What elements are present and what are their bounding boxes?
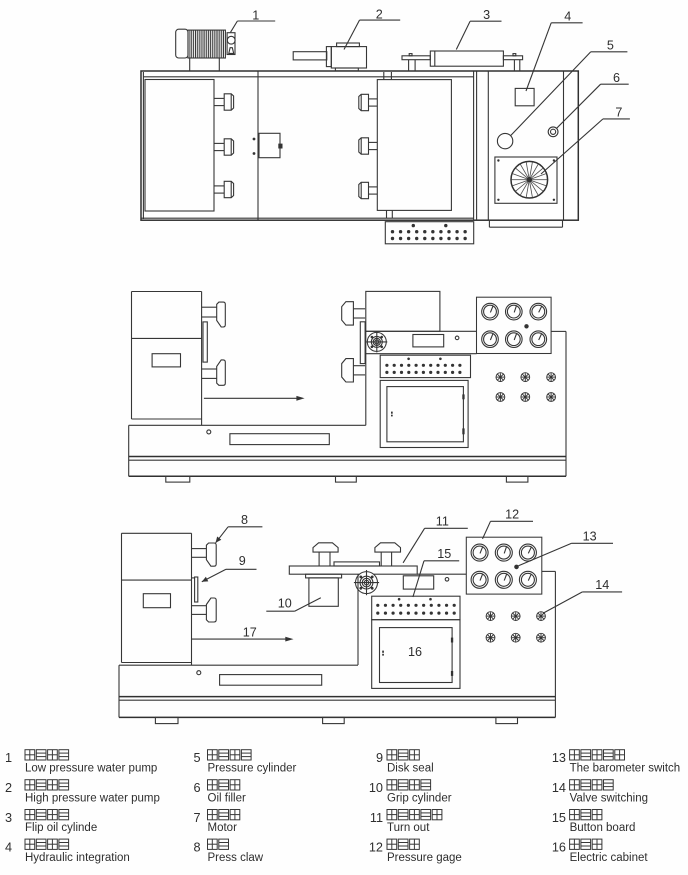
svg-text:Grip cylinder: Grip cylinder: [387, 792, 452, 804]
svg-text:15: 15: [552, 811, 566, 825]
svg-text:11: 11: [370, 811, 383, 825]
svg-text:Flip oil cylinde: Flip oil cylinde: [25, 822, 97, 834]
svg-text:5: 5: [607, 38, 614, 52]
svg-text:Pressure gage: Pressure gage: [387, 852, 462, 864]
svg-text:12: 12: [369, 841, 383, 855]
svg-text:Oil filler: Oil filler: [208, 792, 247, 804]
svg-text:2: 2: [376, 8, 383, 22]
svg-text:14: 14: [552, 781, 566, 795]
svg-text:Hydraulic integration: Hydraulic integration: [25, 852, 130, 864]
svg-text:The barometer switch: The barometer switch: [570, 762, 681, 774]
svg-text:16: 16: [408, 645, 422, 659]
svg-text:6: 6: [613, 71, 620, 85]
svg-text:9: 9: [239, 554, 246, 568]
svg-text:Pressure cylinder: Pressure cylinder: [208, 762, 297, 774]
svg-text:Motor: Motor: [208, 822, 238, 834]
svg-text:9: 9: [376, 751, 383, 765]
svg-text:12: 12: [505, 508, 519, 522]
svg-text:3: 3: [5, 811, 12, 825]
svg-text:Button board: Button board: [570, 822, 636, 834]
svg-text:10: 10: [278, 596, 292, 610]
svg-text:8: 8: [241, 513, 248, 527]
svg-text:15: 15: [437, 547, 451, 561]
svg-text:7: 7: [615, 106, 622, 120]
svg-text:13: 13: [552, 751, 566, 765]
svg-text:3: 3: [483, 8, 490, 22]
svg-text:17: 17: [243, 625, 257, 639]
svg-text:High pressure water pump: High pressure water pump: [25, 792, 160, 804]
svg-text:Electric cabinet: Electric cabinet: [570, 852, 649, 864]
svg-text:14: 14: [595, 578, 609, 592]
svg-text:11: 11: [436, 515, 449, 529]
svg-text:Press claw: Press claw: [208, 852, 264, 864]
svg-text:1: 1: [252, 8, 259, 22]
svg-text:7: 7: [193, 811, 200, 825]
svg-text:Valve switching: Valve switching: [570, 792, 648, 804]
svg-text:8: 8: [193, 841, 200, 855]
svg-text:5: 5: [193, 751, 200, 765]
svg-text:10: 10: [369, 781, 383, 795]
svg-text:1: 1: [5, 751, 12, 765]
svg-text:Turn out: Turn out: [387, 822, 430, 834]
svg-text:13: 13: [583, 529, 597, 543]
svg-text:6: 6: [193, 781, 200, 795]
svg-text:Disk seal: Disk seal: [387, 762, 434, 774]
svg-text:4: 4: [5, 841, 12, 855]
svg-text:Low pressure water pump: Low pressure water pump: [25, 762, 157, 774]
svg-text:2: 2: [5, 781, 12, 795]
svg-text:4: 4: [564, 10, 571, 24]
svg-text:16: 16: [552, 841, 566, 855]
